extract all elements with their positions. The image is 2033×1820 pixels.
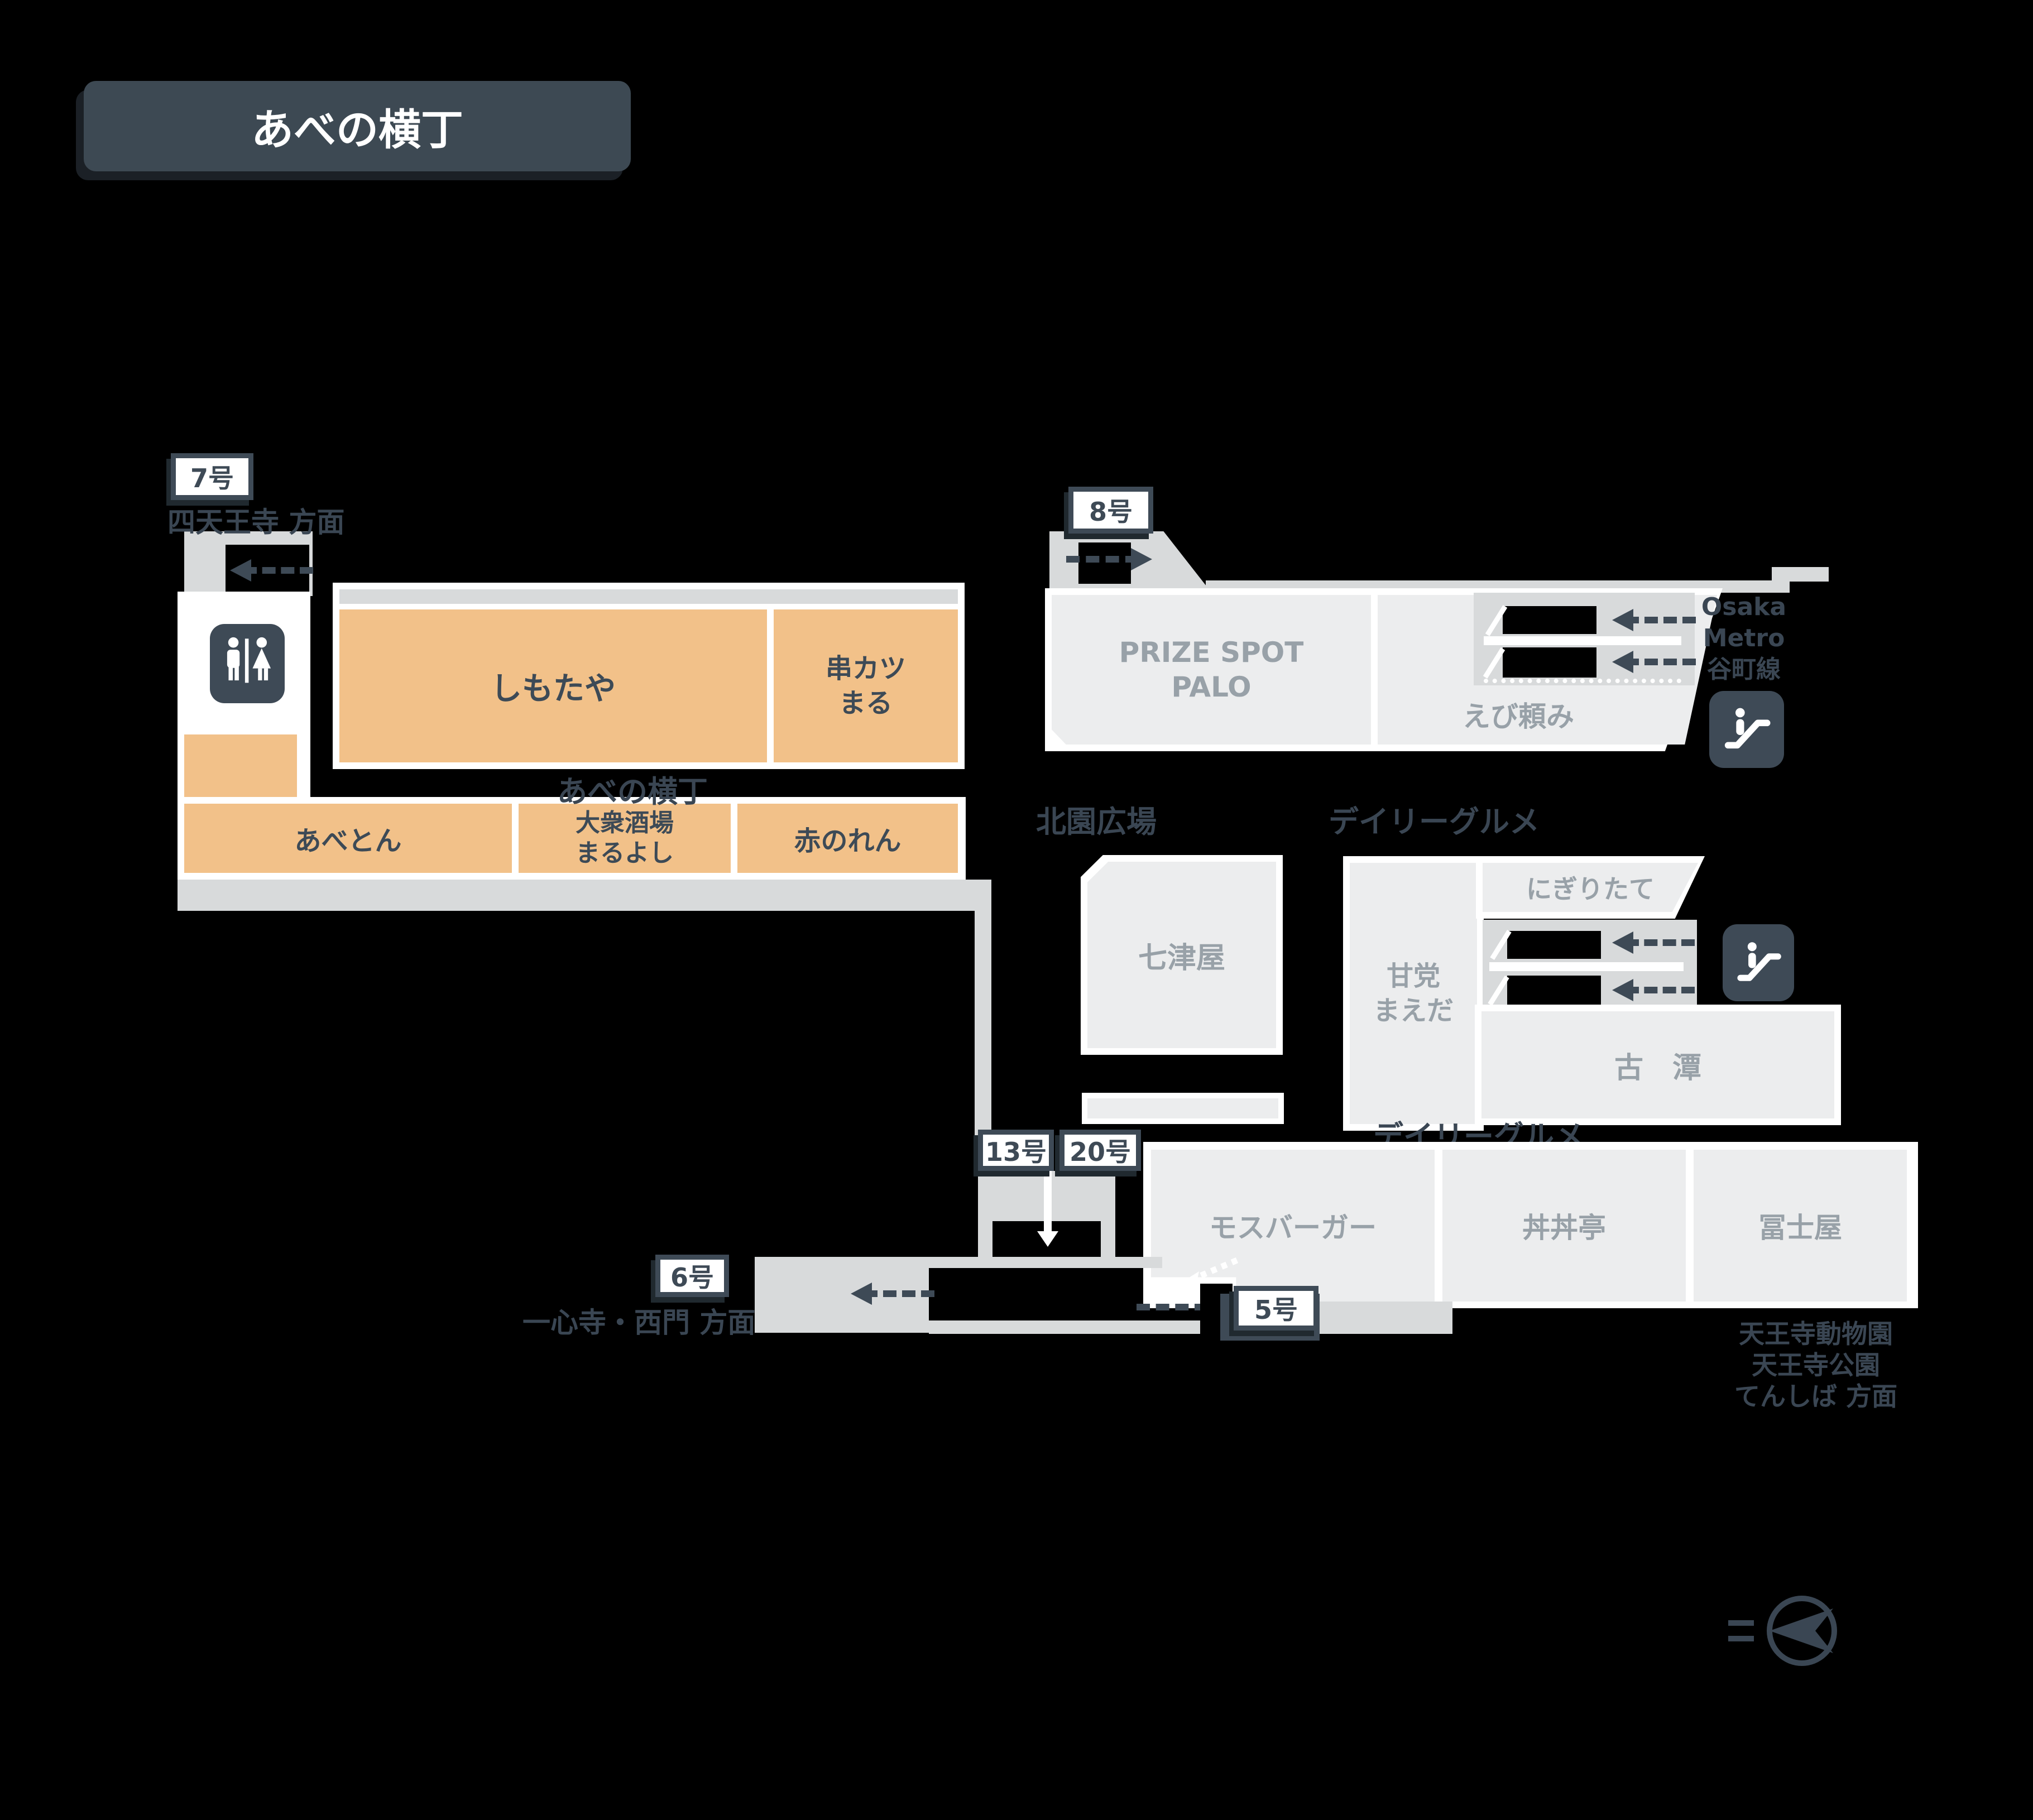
direction-osaka-metro: Osaka Metro 谷町線 — [1694, 592, 1794, 685]
south-corridor-top-strip — [929, 1257, 1162, 1268]
stairs-top-flight-1 — [1503, 606, 1596, 634]
compass-icon — [1725, 1586, 1853, 1681]
stairs-top-arrow-1-icon — [1626, 617, 1696, 623]
exit-label-5: 5号 — [1234, 1286, 1318, 1331]
map-title-badge: あべの横丁 — [84, 81, 631, 171]
abeno-yokocho-floor-map: { "title": "あべの横丁", "exits": { "e5": "5号… — [0, 0, 2033, 1820]
stairs-top-landing — [1484, 636, 1681, 645]
map-title: あべの横丁 — [251, 95, 463, 157]
stairs-top-arrow-2-icon — [1626, 659, 1696, 665]
stairs-mid-arrow-1-icon — [1626, 939, 1695, 946]
nanatsuya-strip — [1087, 1098, 1278, 1118]
shop-nigiritate: にぎりたて — [1483, 863, 1698, 912]
shop-akanoren: 赤のれん — [737, 804, 958, 873]
exit-label-6: 6号 — [655, 1255, 729, 1297]
stairs-mid-arrow-2-icon — [1626, 987, 1695, 993]
upper-walkway-strip — [339, 589, 958, 604]
direction-tennoji: 天王寺動物園 天王寺公園 てんしば 方面 — [1718, 1318, 1914, 1412]
exit8-doorway — [1078, 542, 1131, 584]
exit-label-13-text: 13号 — [985, 1132, 1047, 1169]
exit7-arrow-left-icon — [243, 567, 313, 574]
corridor-1320-right-leg — [1101, 1221, 1115, 1258]
direction-isshinji: 一心寺・西門 方面 — [522, 1300, 755, 1341]
shop-kushikatsu-maru: 串カツ まる — [774, 609, 958, 762]
shop-abeton: あべとん — [184, 804, 512, 873]
south-corridor-bottom-strip — [929, 1320, 1208, 1334]
escalator-icon — [1709, 691, 1784, 768]
exit-label-7: 7号 — [171, 453, 253, 500]
area-daily-gourmet-top: デイリーグルメ — [1329, 797, 1540, 841]
exit-label-20: 20号 — [1059, 1130, 1141, 1171]
stairs-mid-flight-1 — [1507, 931, 1601, 959]
area-kitazono-hiroba: 北園広場 — [1036, 797, 1157, 841]
stairs-mid-flight-2 — [1507, 976, 1601, 1005]
top-walkway-step — [1772, 567, 1829, 582]
exit5-arrow-right-icon — [1137, 1304, 1208, 1310]
exit-label-6-text: 6号 — [670, 1257, 714, 1294]
exit-label-8: 8号 — [1068, 487, 1153, 534]
direction-shitennoji: 四天王寺 方面 — [167, 500, 344, 540]
exit6-arrow-left-icon — [864, 1290, 934, 1297]
abeton-upper-extension — [184, 734, 297, 805]
escalator-icon — [1723, 924, 1794, 1001]
exit-label-13: 13号 — [978, 1130, 1054, 1171]
shop-ebidanomi-label: えび頼み — [1429, 694, 1608, 734]
shop-maruyoshi: 大衆酒場 まるよし — [519, 804, 731, 873]
yokocho-path-walkway — [178, 880, 991, 911]
shop-shimotaya: しもたや — [339, 609, 767, 762]
shop-dondontei: 丼丼亭 — [1442, 1150, 1686, 1302]
shop-nanatsuya: 七津屋 — [1087, 862, 1276, 1048]
shop-kotan: 古 潭 — [1481, 1011, 1834, 1118]
stairs-mid-landing — [1489, 962, 1684, 971]
exit-label-7-text: 7号 — [190, 458, 234, 495]
corridor-1320-divider-tip — [1037, 1231, 1058, 1247]
exit8-arrow-right-icon — [1066, 556, 1139, 563]
stairs-top-flight-2 — [1503, 647, 1596, 678]
restroom-icon — [210, 624, 285, 703]
exit-label-20-text: 20号 — [1070, 1132, 1131, 1169]
shop-fujiya: 冨士屋 — [1694, 1150, 1907, 1302]
exit-label-5-text: 5号 — [1254, 1290, 1298, 1327]
vertical-corridor — [975, 880, 991, 1168]
corridor-1320-left-leg — [978, 1221, 992, 1258]
area-yokocho-path: あべの横丁 — [557, 767, 708, 811]
shop-prize-spot-palo: PRIZE SPOT PALO — [1052, 595, 1371, 745]
stairs-top-dotted-edge — [1484, 679, 1681, 683]
corridor-1320-divider — [1044, 1171, 1052, 1232]
exit-label-8-text: 8号 — [1089, 492, 1133, 529]
shop-amato-maeda: 甘党 まえだ — [1350, 863, 1477, 1124]
